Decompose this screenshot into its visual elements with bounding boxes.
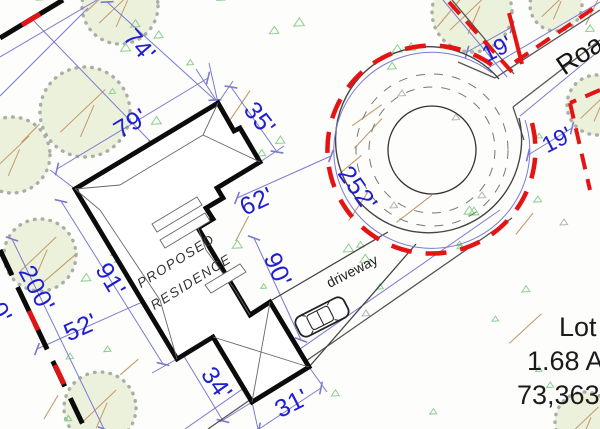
property-boundaries (0, 0, 85, 429)
tree-icon (40, 67, 130, 157)
lot-number-label: Lot (559, 312, 597, 343)
lot-acreage-label: 1.68 A (527, 346, 600, 377)
site-plan-viewport: 74' 79' 35' 62' 90' 91' 52' 200' 0' 34' … (0, 0, 600, 429)
site-plan-drawing (0, 0, 600, 429)
lot-area-label: 73,363 (517, 380, 600, 411)
car-icon (293, 295, 351, 339)
culdesac (334, 47, 530, 249)
